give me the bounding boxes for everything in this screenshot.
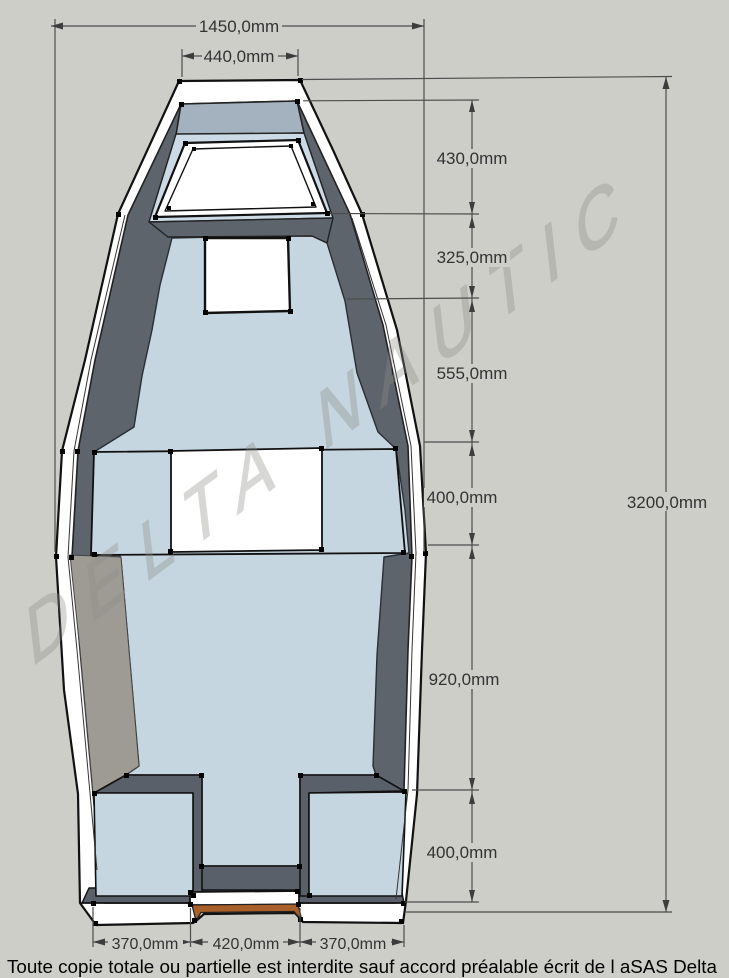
svg-text:920,0mm: 920,0mm (429, 670, 500, 689)
svg-text:400,0mm: 400,0mm (427, 488, 498, 507)
svg-text:400,0mm: 400,0mm (427, 843, 498, 862)
svg-text:555,0mm: 555,0mm (437, 364, 508, 383)
svg-text:370,0mm: 370,0mm (112, 936, 179, 953)
svg-text:3200,0mm: 3200,0mm (627, 493, 707, 512)
svg-text:325,0mm: 325,0mm (437, 248, 508, 267)
svg-text:430,0mm: 430,0mm (437, 149, 508, 168)
svg-text:1450,0mm: 1450,0mm (199, 17, 279, 36)
svg-text:Toute copie totale ou partiell: Toute copie totale ou partielle est inte… (7, 956, 717, 977)
svg-text:440,0mm: 440,0mm (204, 47, 275, 66)
svg-text:370,0mm: 370,0mm (320, 936, 387, 953)
svg-text:420,0mm: 420,0mm (213, 936, 280, 953)
